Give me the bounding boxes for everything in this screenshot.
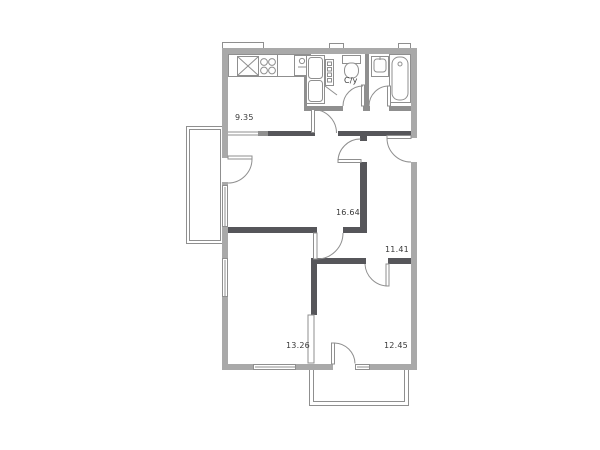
- door-living-corridor: [338, 139, 361, 163]
- door-wc: [343, 85, 365, 106]
- floor-plan-drawing: [0, 0, 600, 450]
- window-bedroom2-bottom: [356, 365, 370, 370]
- door-balcony-bedroom2: [332, 343, 356, 364]
- door-bedroom2: [365, 264, 389, 286]
- interior-walls: [228, 131, 411, 315]
- bathtub-icon: [390, 55, 411, 103]
- partition-bedroom-divider: [308, 315, 314, 363]
- balcony-left: [187, 127, 224, 244]
- door-hall-kitchen: [312, 110, 337, 134]
- room-label-living: 16.64: [336, 208, 360, 217]
- kitchen-sink-icon: [238, 57, 259, 76]
- window-living: [223, 186, 228, 227]
- room-label-bedroom1: 13.26: [286, 341, 310, 350]
- room-label-bathroom: С/у: [344, 76, 358, 85]
- storage-cabinet: [307, 56, 338, 104]
- room-label-kitchen: 9.35: [235, 113, 254, 122]
- door-bedroom1: [314, 233, 344, 259]
- toilet-icon: [343, 56, 361, 79]
- door-bathroom: [369, 86, 391, 106]
- floor-plan: 9.35 С/у 16.64 11.41 13.26 12.45: [0, 0, 600, 450]
- door-entry: [387, 136, 411, 163]
- window-bedroom1-left: [223, 259, 228, 297]
- room-label-hall: 11.41: [385, 245, 409, 254]
- balcony-bottom: [310, 369, 409, 406]
- wall-openings: [222, 138, 417, 370]
- bath-sink-icon: [372, 57, 389, 77]
- window-bedroom1-bottom: [254, 365, 296, 370]
- door-balcony-living: [228, 156, 252, 183]
- room-label-bedroom2: 12.45: [384, 341, 408, 350]
- glazed-partition: [228, 131, 268, 136]
